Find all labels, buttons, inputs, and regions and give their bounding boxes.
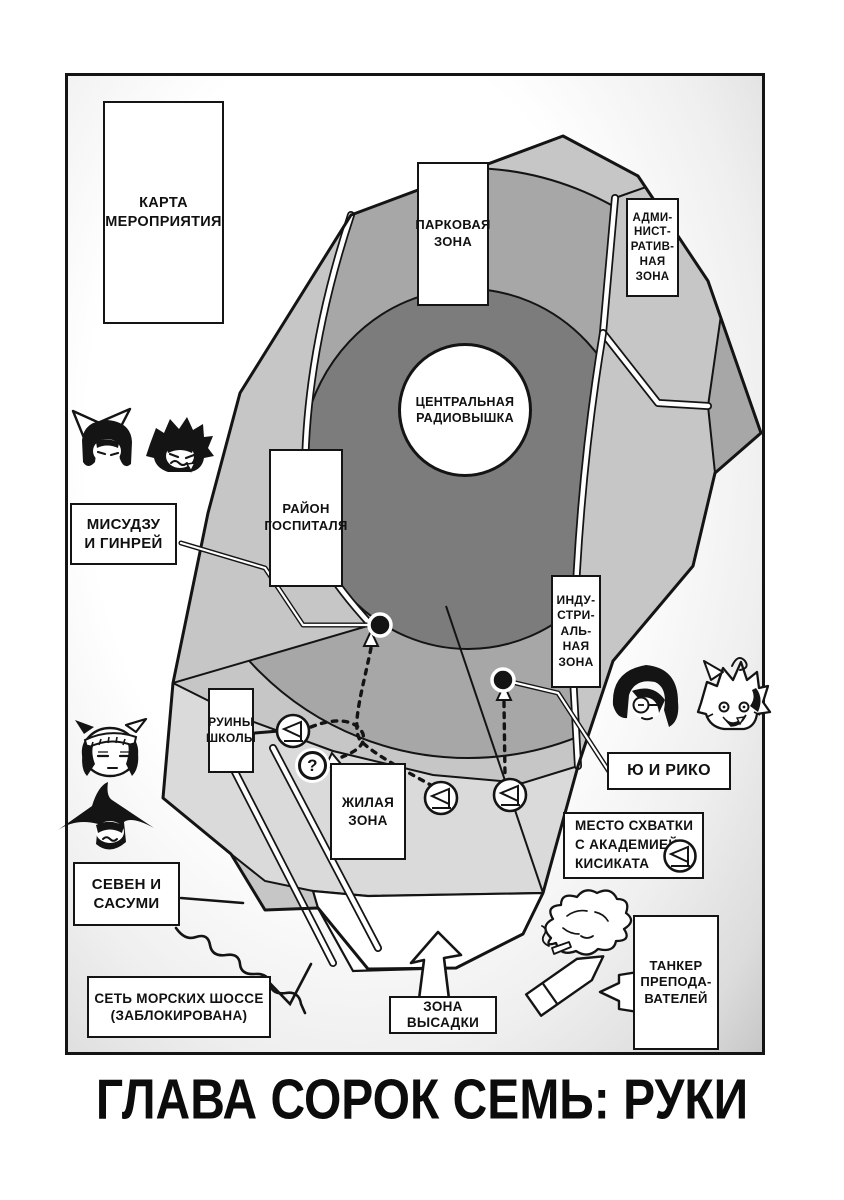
label-central-radio-tower: ЦЕНТРАЛЬНАЯ РАДИОВЫШКА (398, 343, 532, 477)
manga-page: КАРТА МЕРОПРИЯТИЯ ПАРКОВАЯ ЗОНА АДМИ- НИ… (0, 0, 844, 1200)
flag-marker-fight-icon (661, 837, 699, 875)
flag-marker-east (494, 779, 526, 811)
label-landing-zone: ЗОНА ВЫСАДКИ (389, 996, 497, 1034)
chibi-teacher-smoking (535, 884, 641, 966)
chibi-misuzu-ginrei (70, 406, 218, 492)
callout-sea-highways: СЕТЬ МОРСКИХ ШОССЕ (ЗАБЛОКИРОВАНА) (87, 976, 271, 1038)
callout-seven-sasumi: СЕВЕН И САСУМИ (73, 862, 180, 926)
question-marker: ? (298, 751, 327, 780)
label-map-legend: КАРТА МЕРОПРИЯТИЯ (103, 101, 224, 324)
chibi-seven-sasumi (56, 718, 191, 860)
chapter-title: ГЛАВА СОРОК СЕМЬ: РУКИ (0, 1068, 844, 1133)
location-dot-misuzu (369, 614, 391, 636)
label-industrial-zone: ИНДУ- СТРИ- АЛЬ- НАЯ ЗОНА (551, 575, 601, 688)
flag-marker-ruins (277, 715, 309, 747)
location-dot-yu (492, 669, 514, 691)
callout-fight-site: МЕСТО СХВАТКИ С АКАДЕМИЕЙ КИСИКАТА (563, 812, 704, 879)
label-school-ruins: РУИНЫ ШКОЛЫ (208, 688, 254, 773)
flag-marker-residential (425, 782, 457, 814)
chibi-yu-riko (605, 653, 773, 751)
label-hospital-district: РАЙОН ГОСПИТАЛЯ (269, 449, 343, 587)
label-park-zone: ПАРКОВАЯ ЗОНА (417, 162, 489, 306)
label-residential-zone: ЖИЛАЯ ЗОНА (330, 763, 406, 860)
label-admin-zone: АДМИ- НИСТ- РАТИВ- НАЯ ЗОНА (626, 198, 679, 297)
callout-teachers-tanker: ТАНКЕР ПРЕПОДА- ВАТЕЛЕЙ (633, 915, 719, 1050)
callout-misuzu-ginrei: МИСУДЗУ И ГИНРЕЙ (70, 503, 177, 565)
callout-yu-riko: Ю И РИКО (607, 752, 731, 790)
